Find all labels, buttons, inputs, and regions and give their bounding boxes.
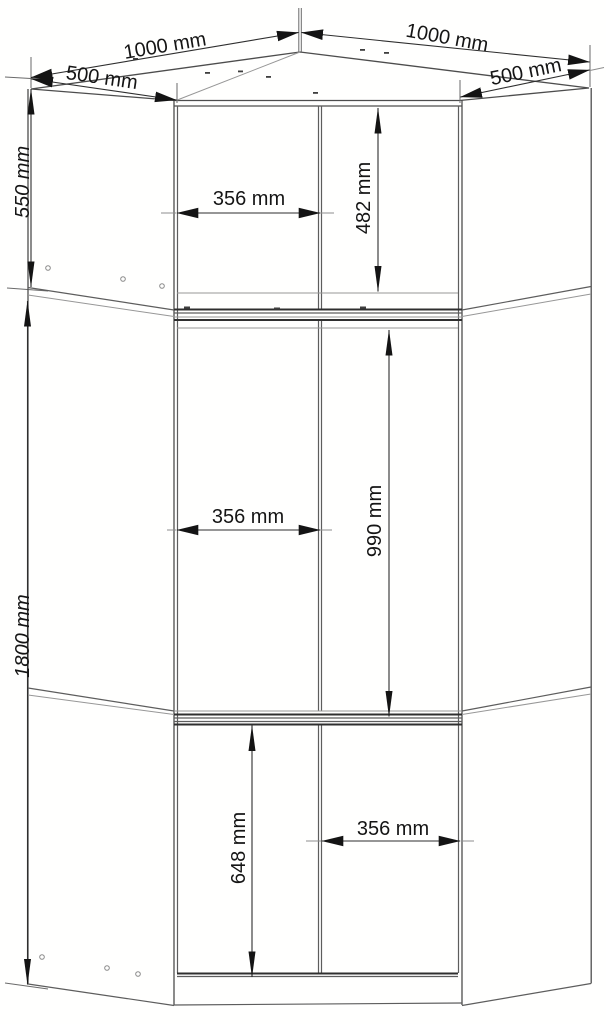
label-middle-door-width: 356 mm bbox=[212, 506, 284, 528]
label-lower-interior-height: 648 mm bbox=[228, 812, 250, 884]
label-middle-interior-height: 990 mm bbox=[364, 485, 386, 557]
drawing-canvas: 1000 mm 1000 mm 500 mm 500 mm 550 mm 482… bbox=[0, 0, 606, 1024]
hinge-holes bbox=[40, 266, 165, 977]
label-top-right-width: 1000 mm bbox=[404, 20, 490, 57]
carcass-edges bbox=[28, 88, 591, 1005]
label-total-height: 1800 mm bbox=[12, 594, 34, 677]
upper-middle-band bbox=[28, 287, 591, 321]
dimension-lines bbox=[28, 33, 590, 985]
label-right-side-depth: 500 mm bbox=[488, 54, 563, 90]
middle-lower-band bbox=[28, 687, 591, 725]
fastener-marks bbox=[133, 49, 389, 310]
extension-lines bbox=[5, 8, 604, 989]
bottom-edges bbox=[28, 974, 591, 1006]
door-divider bbox=[319, 106, 322, 973]
dimension-labels: 1000 mm 1000 mm 500 mm 500 mm 550 mm 482… bbox=[12, 20, 563, 884]
label-upper-door-width: 356 mm bbox=[213, 188, 285, 210]
label-lower-door-width: 356 mm bbox=[357, 818, 429, 840]
label-top-left-width: 1000 mm bbox=[122, 28, 208, 64]
label-upper-interior-height: 482 mm bbox=[353, 162, 375, 234]
label-upper-section-height: 550 mm bbox=[12, 146, 34, 218]
corner-wardrobe-technical-drawing: 1000 mm 1000 mm 500 mm 500 mm 550 mm 482… bbox=[0, 0, 606, 1024]
